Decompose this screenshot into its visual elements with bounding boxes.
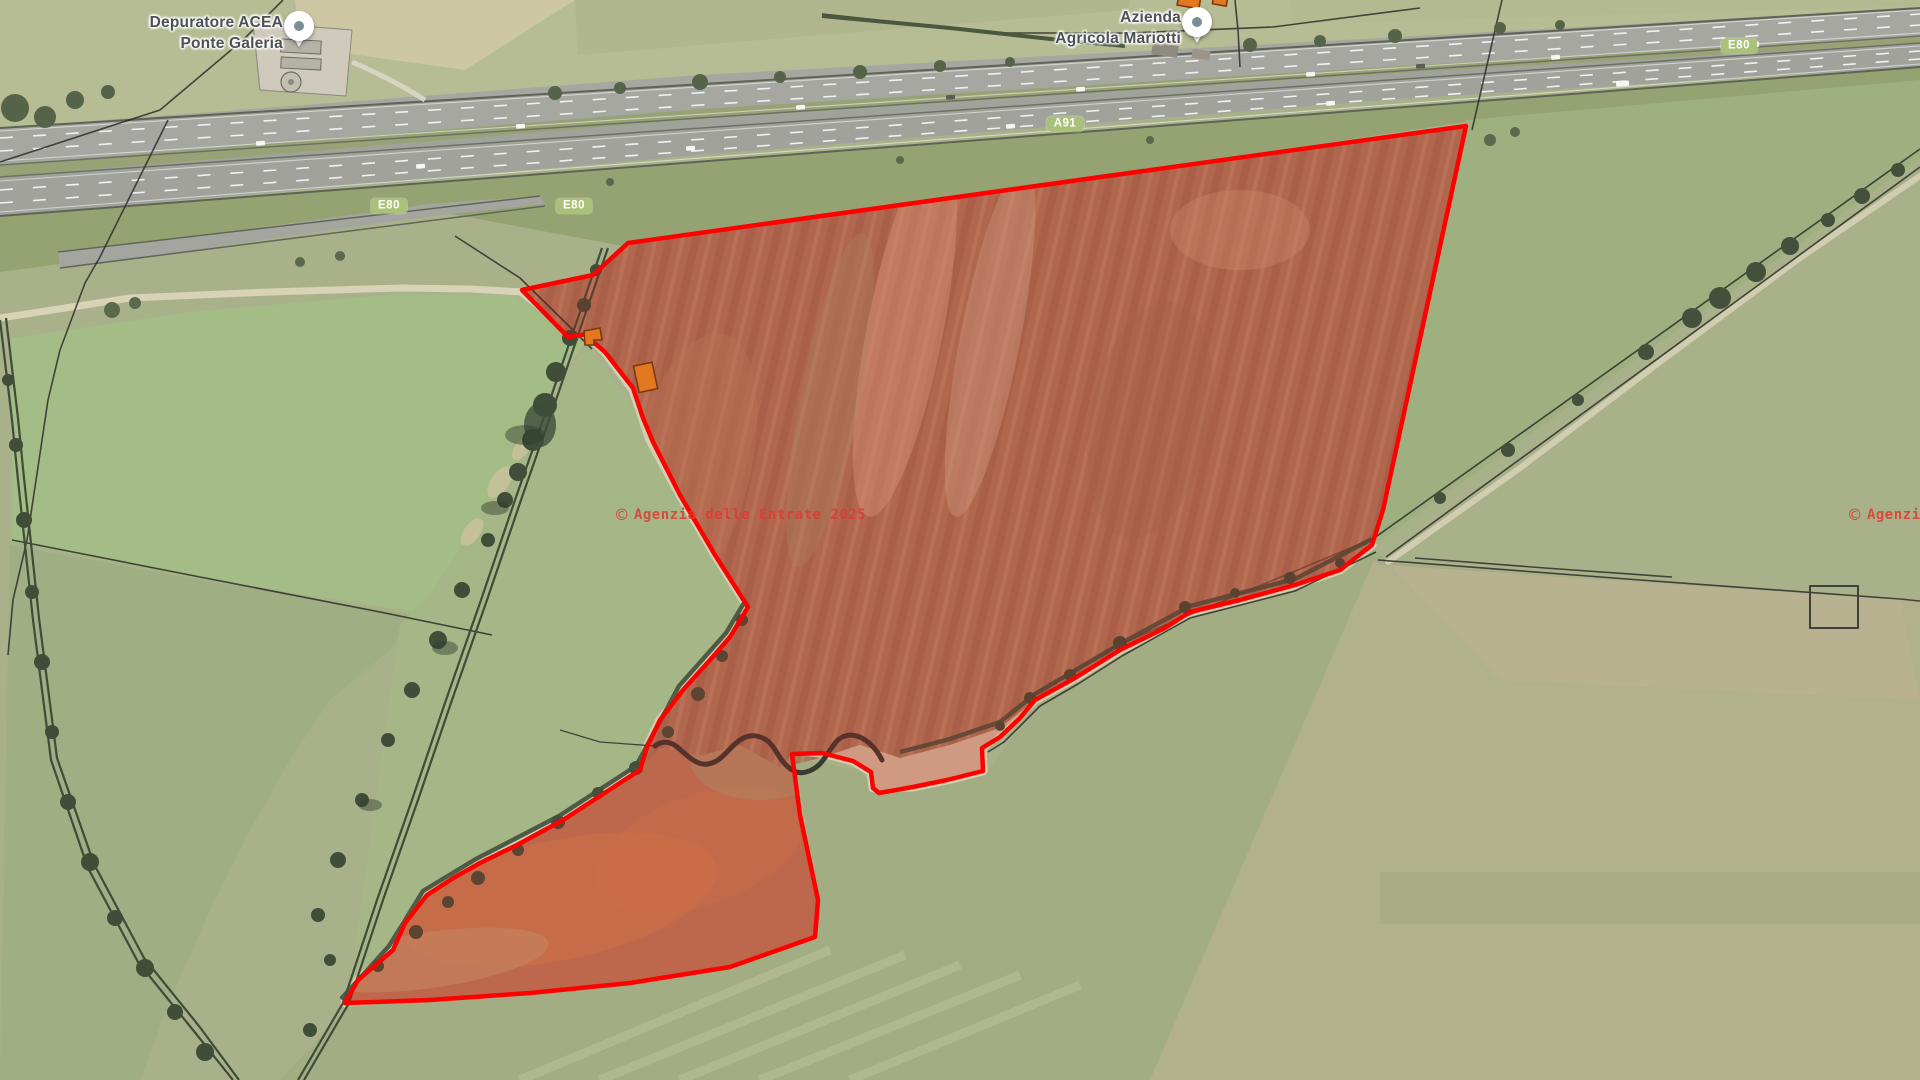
copyright-icon: © bbox=[1849, 504, 1861, 526]
map-pin-depuratore[interactable] bbox=[284, 11, 314, 41]
watermark-attribution-right: ©Agenzia delle Entrate 2025 bbox=[1849, 504, 1920, 526]
road-badge-e80-west-1: E80 bbox=[371, 199, 407, 214]
map-canvas[interactable]: Depuratore ACEA Ponte Galeria Azienda Ag… bbox=[0, 0, 1920, 1080]
label-azienda-line2: Agricola Mariotti bbox=[1055, 28, 1181, 49]
label-depuratore-line1: Depuratore ACEA bbox=[150, 12, 283, 33]
road-badge-a91: A91 bbox=[1047, 117, 1084, 132]
road-badge-e80-west-2: E80 bbox=[556, 199, 592, 214]
watermark-text: Agenzia delle Entrate 2025 bbox=[1867, 507, 1920, 523]
road-badge-e80-east: E80 bbox=[1721, 39, 1757, 54]
label-depuratore: Depuratore ACEA Ponte Galeria bbox=[150, 12, 283, 54]
pin-dot-icon bbox=[1192, 17, 1202, 27]
watermark-attribution: ©Agenzia delle Entrate 2025 bbox=[616, 504, 866, 526]
label-depuratore-line2: Ponte Galeria bbox=[150, 33, 283, 54]
watermark-text: Agenzia delle Entrate 2025 bbox=[634, 507, 866, 523]
label-azienda: Azienda Agricola Mariotti bbox=[1055, 7, 1181, 49]
copyright-icon: © bbox=[616, 504, 628, 526]
map-pin-azienda[interactable] bbox=[1182, 7, 1212, 37]
pin-dot-icon bbox=[294, 21, 304, 31]
label-azienda-line1: Azienda bbox=[1055, 7, 1181, 28]
satellite-map[interactable] bbox=[0, 0, 1920, 1080]
